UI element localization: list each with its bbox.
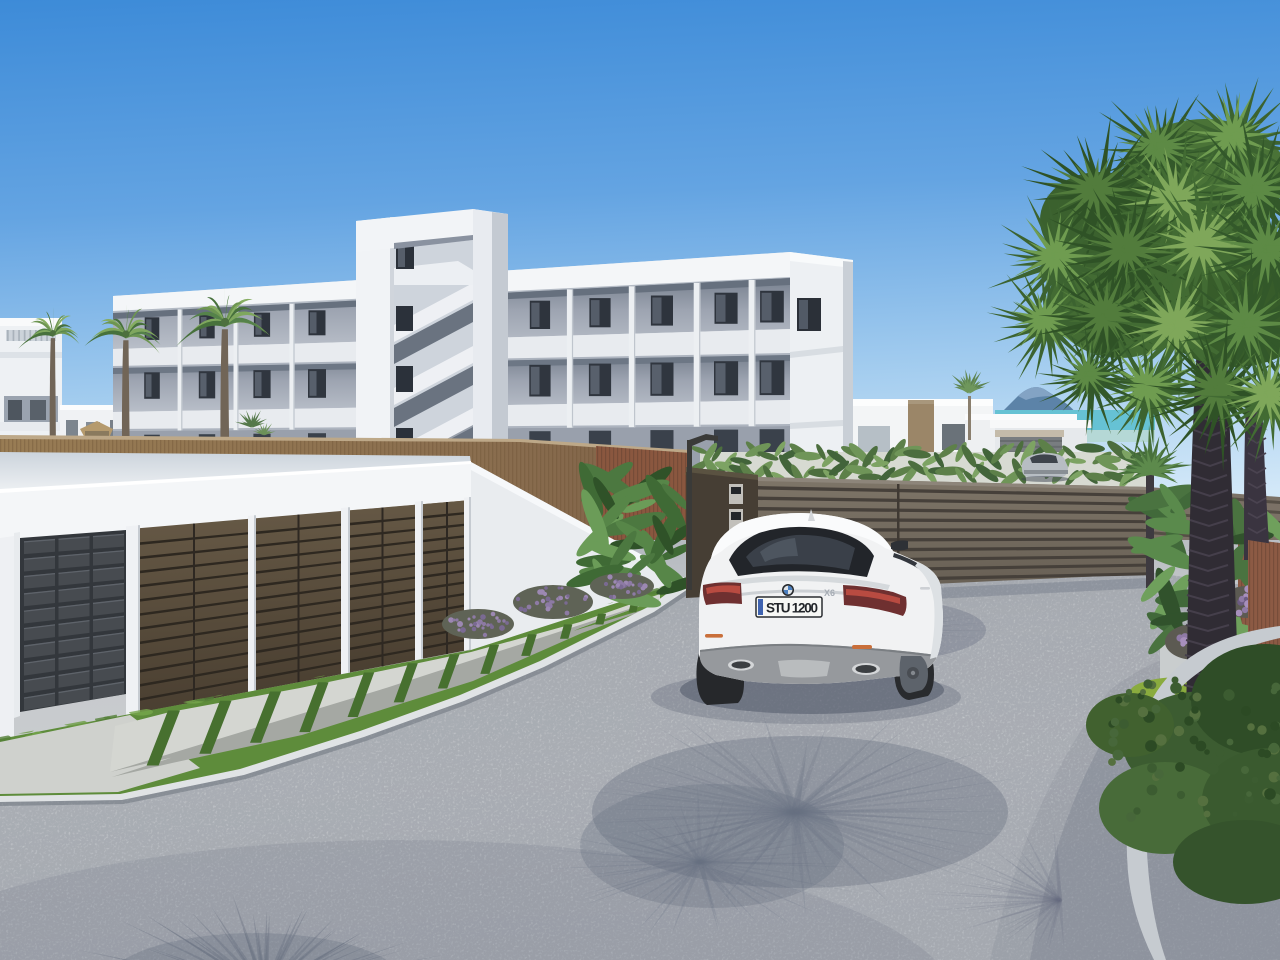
svg-text:X6: X6 xyxy=(824,588,835,598)
svg-text:STU 1200: STU 1200 xyxy=(766,601,818,616)
